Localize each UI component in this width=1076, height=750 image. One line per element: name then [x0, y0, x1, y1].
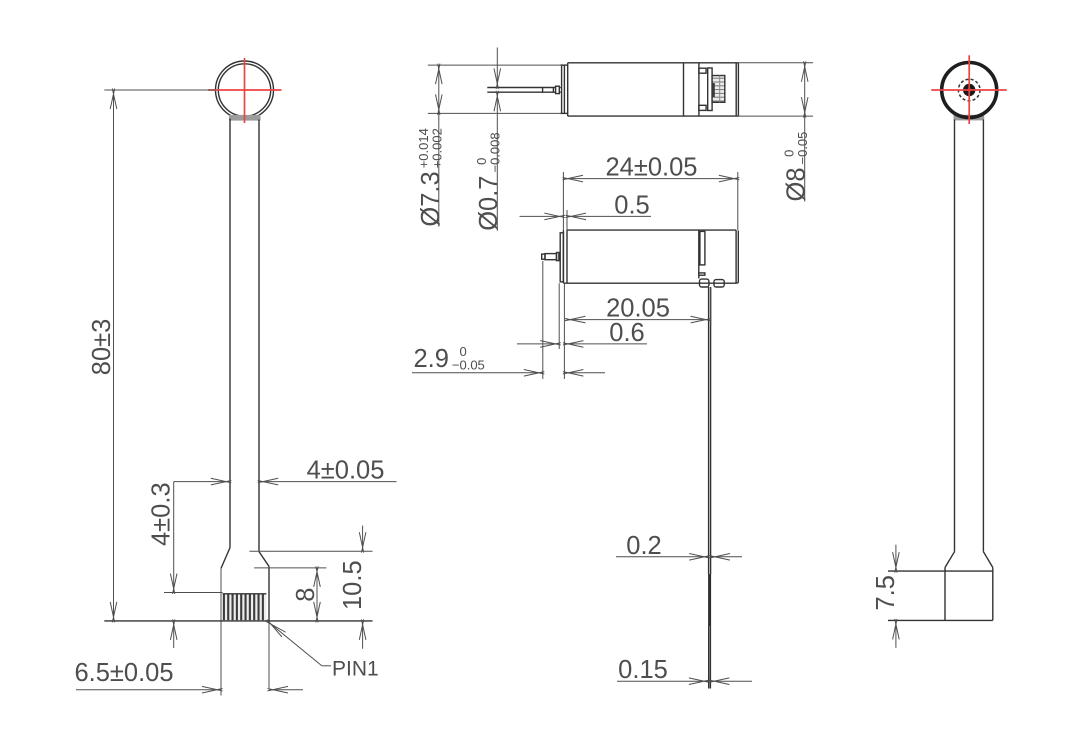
svg-text:Ø8: Ø8 — [783, 167, 811, 201]
svg-text:4±0.05: 4±0.05 — [307, 457, 385, 485]
svg-text:10.5: 10.5 — [339, 560, 367, 610]
svg-text:−0.05: −0.05 — [452, 358, 485, 373]
svg-text:2.9: 2.9 — [414, 345, 449, 373]
svg-text:PIN1: PIN1 — [332, 658, 379, 681]
svg-text:0.2: 0.2 — [626, 532, 661, 560]
svg-text:−0.05: −0.05 — [795, 132, 810, 165]
svg-text:80±3: 80±3 — [88, 319, 116, 376]
svg-text:0.5: 0.5 — [614, 191, 649, 219]
svg-text:+0.002: +0.002 — [430, 128, 445, 168]
svg-text:8: 8 — [292, 588, 320, 602]
svg-text:6.5±0.05: 6.5±0.05 — [74, 659, 173, 687]
svg-text:Ø7.3: Ø7.3 — [417, 171, 445, 226]
svg-text:−0.008: −0.008 — [488, 132, 503, 172]
svg-text:24±0.05: 24±0.05 — [606, 154, 698, 182]
svg-text:4±0.3: 4±0.3 — [148, 482, 176, 546]
svg-text:0.15: 0.15 — [618, 656, 668, 684]
svg-text:Ø0.7: Ø0.7 — [475, 176, 503, 231]
svg-text:7.5: 7.5 — [872, 575, 900, 610]
svg-text:0.6: 0.6 — [609, 319, 644, 347]
